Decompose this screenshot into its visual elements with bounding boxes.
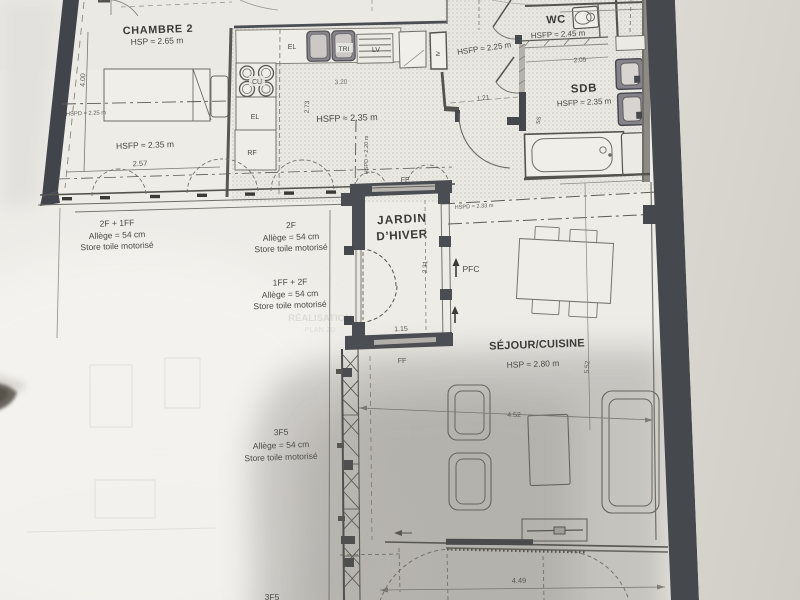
svg-text:HSFP ≈ 2.35 m: HSFP ≈ 2.35 m: [116, 139, 174, 151]
svg-text:Allège = 54 cm: Allège = 54 cm: [263, 231, 320, 243]
svg-text:2.31: 2.31: [422, 260, 429, 273]
svg-text:SDB: SDB: [571, 82, 598, 95]
svg-text:2F: 2F: [286, 220, 296, 230]
svg-text:HSP ≈ 2.65 m: HSP ≈ 2.65 m: [131, 35, 184, 47]
svg-text:2.05: 2.05: [574, 57, 587, 65]
svg-text:1.15: 1.15: [394, 326, 408, 333]
svg-text:Allège = 54 cm: Allège = 54 cm: [262, 288, 319, 300]
svg-text:LV: LV: [372, 47, 380, 54]
svg-text:CU: CU: [252, 79, 262, 86]
svg-text:EL: EL: [288, 44, 297, 51]
svg-text:Allège = 54 cm: Allège = 54 cm: [89, 229, 146, 241]
svg-text:TRI: TRI: [339, 46, 350, 53]
svg-text:RÉALISATION: RÉALISATION: [288, 313, 352, 324]
svg-text:1FF + 2F: 1FF + 2F: [273, 276, 308, 287]
svg-text:2F + 1FF: 2F + 1FF: [100, 217, 135, 228]
svg-text:JARDIN: JARDIN: [377, 211, 428, 228]
svg-text:WC: WC: [546, 14, 566, 27]
svg-text:D’HIVER: D’HIVER: [376, 227, 428, 244]
svg-text:FF: FF: [401, 177, 410, 184]
svg-text:RF: RF: [247, 150, 256, 157]
svg-text:2.57: 2.57: [133, 159, 148, 169]
svg-text:HSPD ≈ 2.20 m: HSPD ≈ 2.20 m: [364, 135, 370, 174]
svg-text:EL: EL: [251, 114, 260, 121]
svg-text:≥: ≥: [436, 49, 441, 58]
svg-text:PLAN 2D: PLAN 2D: [304, 325, 336, 334]
svg-text:PFC: PFC: [463, 264, 480, 274]
svg-text:4.00: 4.00: [80, 73, 87, 87]
svg-text:3.20: 3.20: [335, 79, 348, 86]
svg-text:HSFP ≈ 2.35 m: HSFP ≈ 2.35 m: [316, 112, 378, 124]
svg-text:2.73: 2.73: [304, 100, 311, 113]
